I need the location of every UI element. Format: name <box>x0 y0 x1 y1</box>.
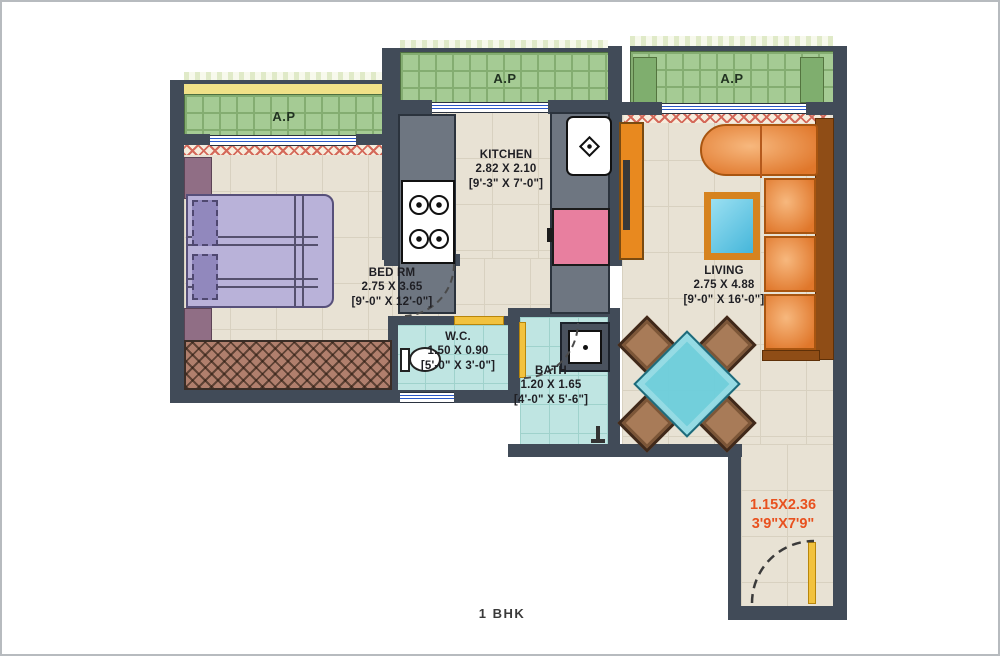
bath-imperial: [4'-0" X 5'-6"] <box>490 393 612 407</box>
living-metric: 2.75 X 4.88 <box>658 278 790 292</box>
dining-set <box>620 322 756 452</box>
tall-cabinet <box>619 122 644 260</box>
wall-stub <box>184 134 210 145</box>
bed-stripe <box>294 196 304 306</box>
living-name: LIVING <box>658 264 790 278</box>
tap-icon <box>596 426 600 439</box>
kitchen-imperial: [9'-3" X 7'-0"] <box>442 177 570 191</box>
plan-type-label: 1 BHK <box>454 606 550 621</box>
sofa-seat <box>700 124 818 176</box>
entry-passage-imperial: 3'9"X7'9" <box>730 515 836 534</box>
coffee-table <box>704 192 760 260</box>
floor-plan-canvas: A.P A.P A.P <box>0 0 1000 656</box>
pillow <box>192 200 218 246</box>
greenery-strip <box>630 36 833 46</box>
sink-icon <box>566 116 612 176</box>
sink-drain-icon <box>578 135 599 156</box>
bedroom-label: BED RM 2.75 X 3.65 [9'-0" X 12'-0"] <box>322 266 462 309</box>
wall-exterior-left <box>170 80 184 403</box>
wall-exterior-right <box>833 46 847 620</box>
sofa-divider <box>760 126 762 178</box>
living-imperial: [9'-0" X 16'-0"] <box>658 293 790 307</box>
entry-passage-label: 1.15X2.36 3'9"X7'9" <box>730 496 836 534</box>
entrance-door <box>808 542 816 604</box>
burner-icon <box>429 229 449 249</box>
stove-icon <box>401 180 455 264</box>
kitchen-name: KITCHEN <box>442 148 570 162</box>
burner-icon <box>409 229 429 249</box>
shower-drain-icon <box>583 345 588 350</box>
wall-entry-bottom <box>728 606 847 620</box>
planter <box>800 57 824 103</box>
kitchen-balcony-label: A.P <box>493 71 516 86</box>
living-label: LIVING 2.75 X 4.88 [9'-0" X 16'-0"] <box>658 264 790 307</box>
bedroom-imperial: [9'-0" X 12'-0"] <box>322 295 462 309</box>
entry-passage-metric: 1.15X2.36 <box>730 496 836 515</box>
bedroom-balcony: A.P <box>184 94 384 138</box>
refrigerator <box>552 208 610 266</box>
sofa-seat <box>764 178 816 234</box>
wc-door <box>454 316 504 325</box>
wall-stub <box>806 102 833 115</box>
wardrobe <box>184 340 392 390</box>
kitchen-label: KITCHEN 2.82 X 2.10 [9'-3" X 7'-0"] <box>442 148 570 191</box>
bedroom-metric: 2.75 X 3.65 <box>322 280 462 294</box>
bedroom-balcony-label: A.P <box>272 109 295 124</box>
wall-stub <box>356 134 382 145</box>
burner-icon <box>409 195 429 215</box>
shower-tray-icon <box>568 330 602 364</box>
wall-pier <box>184 157 212 199</box>
sill-hatch <box>624 114 830 123</box>
wall <box>630 46 833 51</box>
pillow <box>192 254 218 300</box>
window-wc <box>400 392 454 403</box>
fridge-handle <box>547 228 553 242</box>
bath-name: BATH <box>490 364 612 378</box>
wall-bedroom-kitchen <box>382 146 398 260</box>
kitchen-metric: 2.82 X 2.10 <box>442 162 570 176</box>
living-balcony-label: A.P <box>720 71 743 86</box>
wc-name: W.C. <box>402 330 514 344</box>
bath-label: BATH 1.20 X 1.65 [4'-0" X 5'-6"] <box>490 364 612 407</box>
window-bedroom-balcony <box>210 135 356 146</box>
wall <box>400 48 608 52</box>
kitchen-balcony: A.P <box>400 52 610 104</box>
wall <box>170 390 520 403</box>
window-kitchen-balcony <box>432 102 548 113</box>
cabinet-handle <box>623 160 630 230</box>
window-living-balcony <box>662 103 806 114</box>
burner-icon <box>429 195 449 215</box>
sill-hatch <box>184 145 382 155</box>
wall-stub <box>400 100 432 114</box>
wall-stub <box>622 102 662 115</box>
bath-metric: 1.20 X 1.65 <box>490 378 612 392</box>
greenery-strip <box>184 72 382 80</box>
planter <box>633 57 657 103</box>
wall <box>184 80 382 84</box>
sofa-frame <box>762 350 820 361</box>
bedroom-name: BED RM <box>322 266 462 280</box>
wc-metric: 1.50 X 0.90 <box>402 344 514 358</box>
